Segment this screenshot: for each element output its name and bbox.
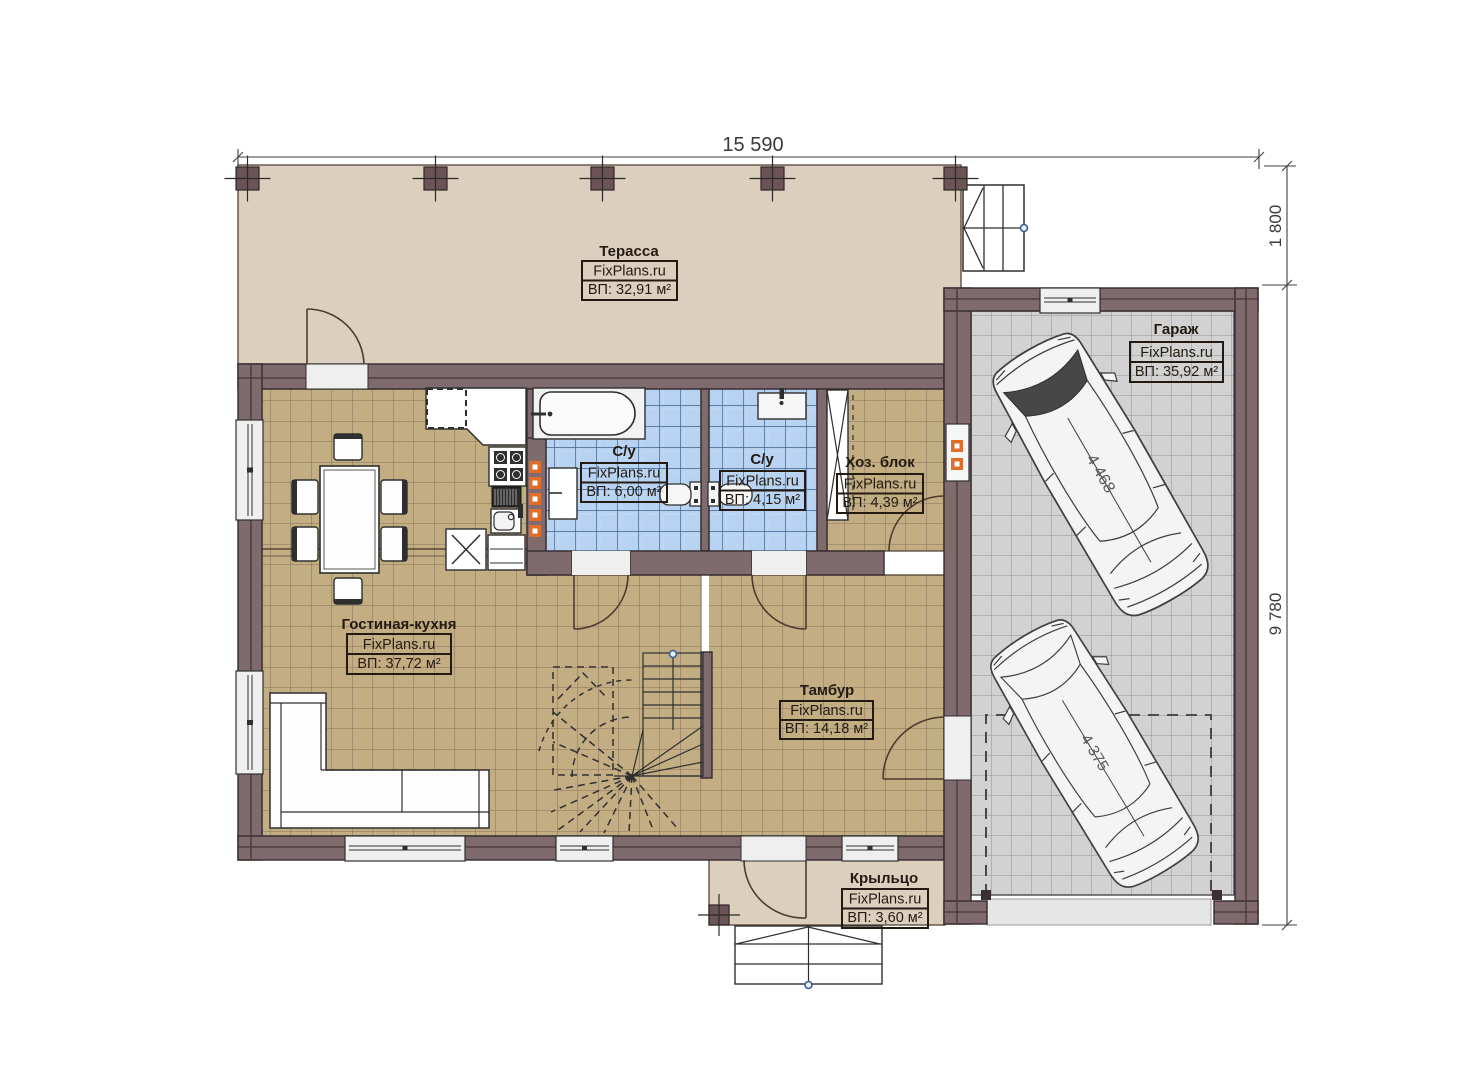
svg-text:FixPlans.ru: FixPlans.ru [1140, 345, 1213, 361]
svg-text:Терасса: Терасса [599, 243, 659, 260]
svg-text:Гараж: Гараж [1154, 321, 1199, 338]
svg-text:Гостиная-кухня: Гостиная-кухня [342, 616, 457, 633]
svg-text:FixPlans.ru: FixPlans.ru [849, 892, 922, 908]
svg-text:ВП: 4,15 м²: ВП: 4,15 м² [725, 492, 800, 508]
svg-text:Тамбур: Тамбур [800, 682, 854, 699]
svg-text:С/у: С/у [750, 451, 774, 468]
svg-text:ВП: 3,60 м²: ВП: 3,60 м² [847, 910, 922, 926]
svg-text:FixPlans.ru: FixPlans.ru [363, 637, 436, 653]
svg-text:С/у: С/у [612, 443, 636, 460]
svg-text:ВП: 14,18 м²: ВП: 14,18 м² [785, 721, 868, 737]
svg-text:FixPlans.ru: FixPlans.ru [790, 703, 863, 719]
svg-text:ВП: 35,92 м²: ВП: 35,92 м² [1135, 364, 1218, 380]
svg-text:FixPlans.ru: FixPlans.ru [844, 477, 917, 493]
svg-text:ВП: 4,39 м²: ВП: 4,39 м² [842, 495, 917, 511]
svg-text:1 800: 1 800 [1266, 205, 1285, 248]
svg-text:Крыльцо: Крыльцо [850, 870, 918, 887]
svg-text:FixPlans.ru: FixPlans.ru [588, 466, 661, 482]
svg-text:ВП: 37,72 м²: ВП: 37,72 м² [357, 656, 440, 672]
svg-text:FixPlans.ru: FixPlans.ru [593, 264, 666, 280]
svg-text:15 590: 15 590 [722, 134, 783, 156]
svg-text:ВП: 6,00 м²: ВП: 6,00 м² [586, 484, 661, 500]
svg-text:9 780: 9 780 [1266, 593, 1285, 636]
svg-text:Хоз. блок: Хоз. блок [845, 454, 915, 471]
svg-text:FixPlans.ru: FixPlans.ru [726, 474, 799, 490]
svg-text:ВП: 32,91 м²: ВП: 32,91 м² [588, 282, 671, 298]
